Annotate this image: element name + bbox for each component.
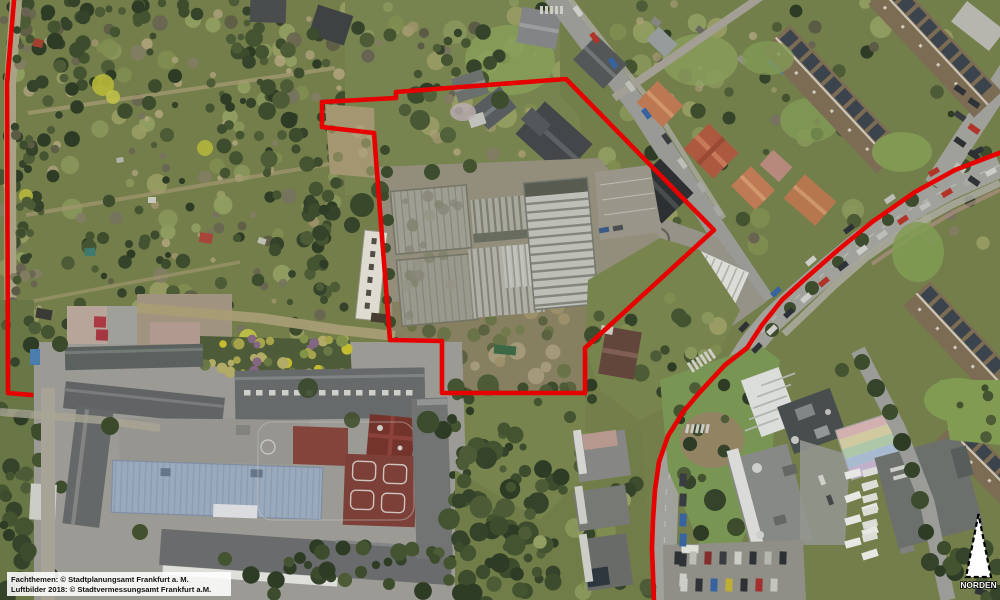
svg-text:Fachthemen: © Stadtplanungsamt: Fachthemen: © Stadtplanungsamt Frankfurt… [11, 575, 189, 584]
svg-text:Luftbilder 2018: © Stadtvermes: Luftbilder 2018: © Stadtvermessungsamt F… [11, 585, 211, 594]
svg-text:NORDEN: NORDEN [960, 580, 996, 590]
